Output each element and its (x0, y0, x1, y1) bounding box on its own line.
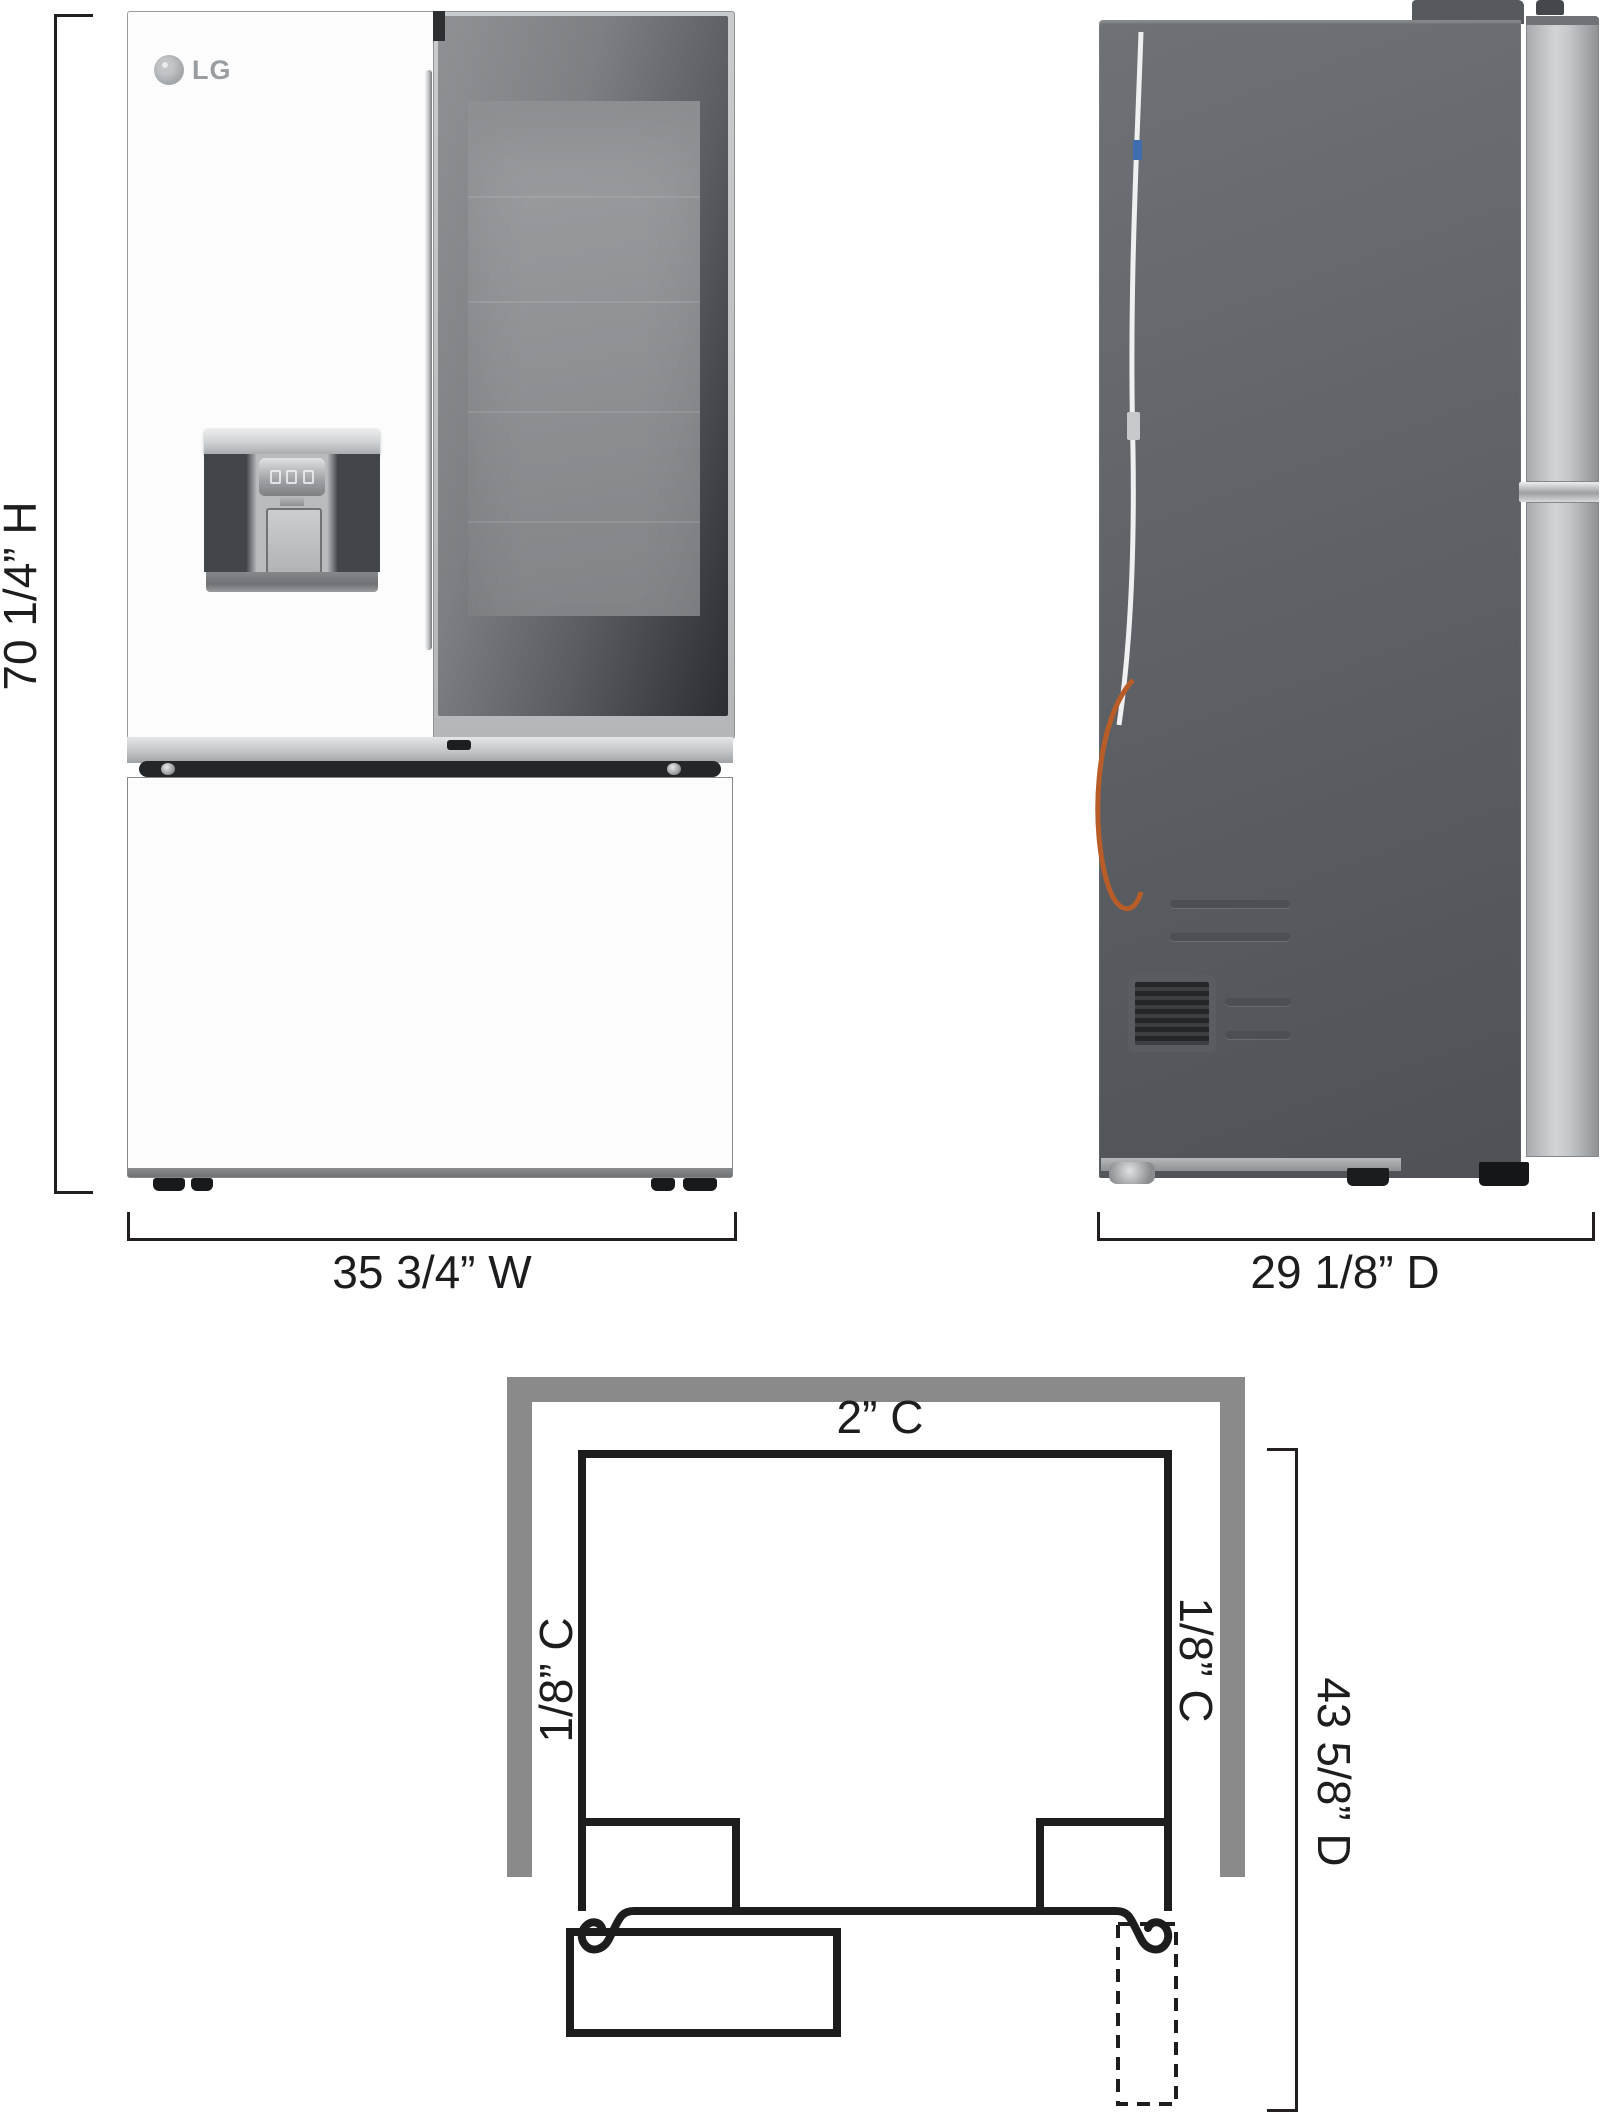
left-clearance-label: 1/8” C (533, 1617, 579, 1742)
height-dimension-bracket (54, 14, 93, 1194)
water-icon (286, 470, 297, 484)
line-clip (1127, 412, 1140, 440)
front-right-door (433, 11, 735, 739)
foot-front-left-inner (191, 1178, 213, 1191)
width-dimension-label: 35 3/4” W (332, 1249, 531, 1295)
foot-front-right-inner (651, 1178, 675, 1191)
instaview-inner-window (468, 101, 700, 616)
freezer-drawer-front (127, 777, 733, 1178)
depth-dimension-bracket (1097, 1212, 1595, 1241)
shelf-line (468, 411, 700, 413)
shelf-line (468, 196, 700, 198)
side-hinge-knob (1536, 0, 1564, 15)
right-clearance-label: 1/8” C (1173, 1597, 1219, 1722)
water-ice-dispenser (204, 428, 380, 600)
dispenser-spout (280, 496, 304, 506)
side-door-top-cap (1526, 16, 1599, 25)
crushed-ice-icon (303, 470, 314, 484)
instaview-glass-panel (438, 16, 728, 716)
side-vent-grille (1128, 975, 1216, 1052)
side-wiring (1049, 20, 1159, 940)
dispenser-selector-knob (259, 458, 325, 496)
side-drawer-edge-lower (1526, 502, 1599, 1157)
side-rear-foot (1347, 1168, 1389, 1186)
side-middle-hinge (1519, 482, 1599, 502)
height-dimension-label: 70 1/4” H (0, 501, 43, 690)
side-roller (1109, 1162, 1155, 1184)
left-door-notch (586, 1822, 736, 1907)
side-front-foot (1479, 1162, 1529, 1186)
cabinet-outline (582, 1454, 1168, 1911)
side-panel-rib (1225, 998, 1291, 1006)
dispenser-top-bar (204, 428, 380, 454)
side-door-edge-upper (1526, 16, 1599, 482)
depth-dimension-label: 29 1/8” D (1250, 1249, 1439, 1295)
water-line (1119, 32, 1141, 725)
diagram-depth-label: 43 5/8” D (1311, 1677, 1357, 1866)
center-top-hinge (433, 11, 445, 41)
hinge-cap-left (161, 763, 175, 775)
installation-clearance-diagram (500, 1372, 1300, 2116)
lg-logo-text: LG (192, 55, 232, 86)
foot-front-left-outer (153, 1178, 185, 1191)
cubed-ice-icon (270, 470, 281, 484)
drawer-bottom-edge (128, 1168, 732, 1177)
center-hinge-band (139, 761, 721, 777)
right-door-grip-notch (447, 740, 471, 750)
right-hinge-hook (1100, 1911, 1168, 1950)
lg-logo-icon (154, 55, 184, 85)
door-bottom-rail (127, 737, 733, 763)
width-dimension-bracket (127, 1212, 737, 1241)
right-door-notch (1040, 1822, 1164, 1907)
shelf-line (468, 301, 700, 303)
hinge-cap-right (667, 763, 681, 775)
side-panel-rib (1170, 900, 1290, 908)
dispenser-drip-tray (206, 572, 378, 592)
left-door-handle (425, 70, 432, 650)
spec-sheet: 70 1/4” H LG (0, 0, 1600, 2116)
diagram-depth-bracket (1267, 1448, 1298, 2112)
refrigerator-front-view: LG (127, 11, 733, 1190)
side-panel-rib (1225, 1031, 1291, 1039)
side-panel-rib (1170, 933, 1290, 941)
water-line-connector (1133, 140, 1142, 160)
dispenser-paddle (266, 508, 322, 574)
lg-logo: LG (154, 54, 232, 86)
left-door-open-outline (570, 1932, 837, 2033)
vent-slats (1135, 982, 1209, 1045)
shelf-line (468, 521, 700, 523)
foot-front-right-outer (683, 1178, 717, 1191)
refrigerator-side-view (1099, 0, 1600, 1192)
top-clearance-label: 2” C (837, 1394, 924, 1440)
front-left-door: LG (127, 11, 435, 739)
